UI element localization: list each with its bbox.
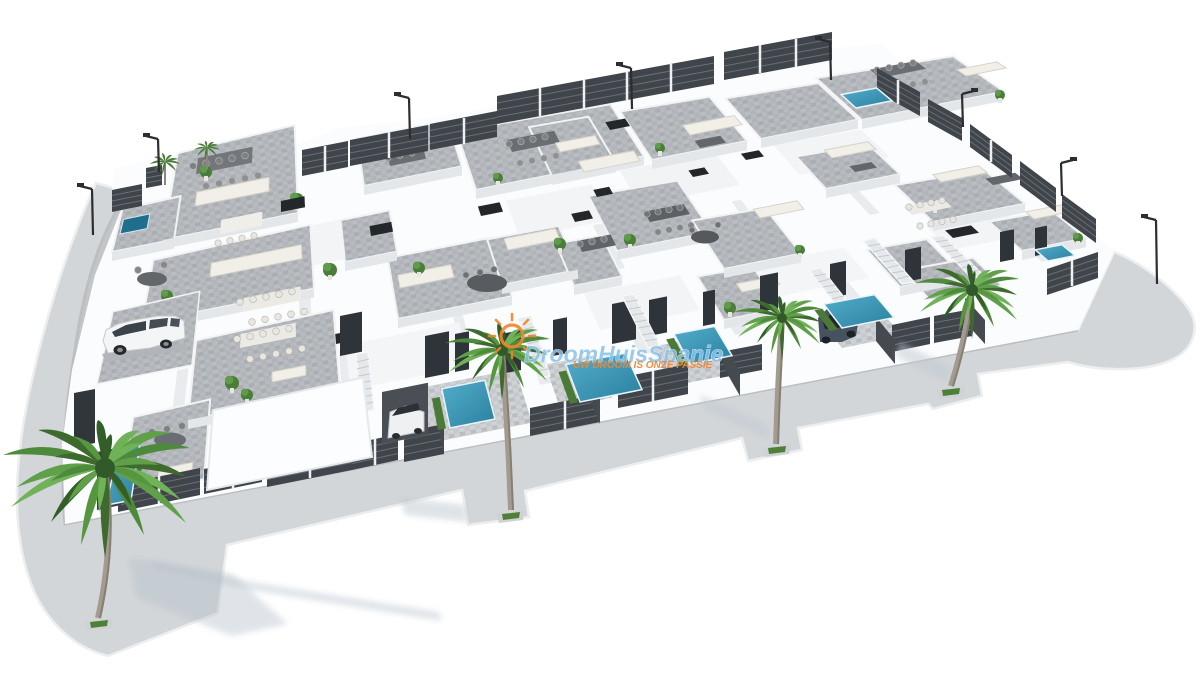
svg-text:UW DROOM IS ONZE PASSIE: UW DROOM IS ONZE PASSIE [573,360,713,371]
